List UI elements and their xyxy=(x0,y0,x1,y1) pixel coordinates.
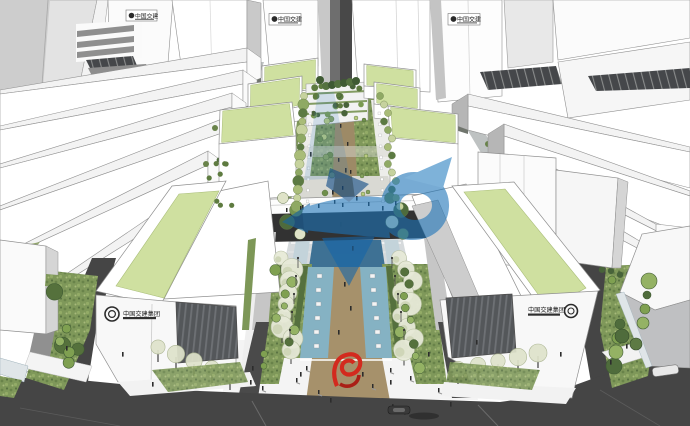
svg-text:中国交建集团: 中国交建集团 xyxy=(528,306,565,314)
svg-text:中国交建集团: 中国交建集团 xyxy=(123,310,160,318)
